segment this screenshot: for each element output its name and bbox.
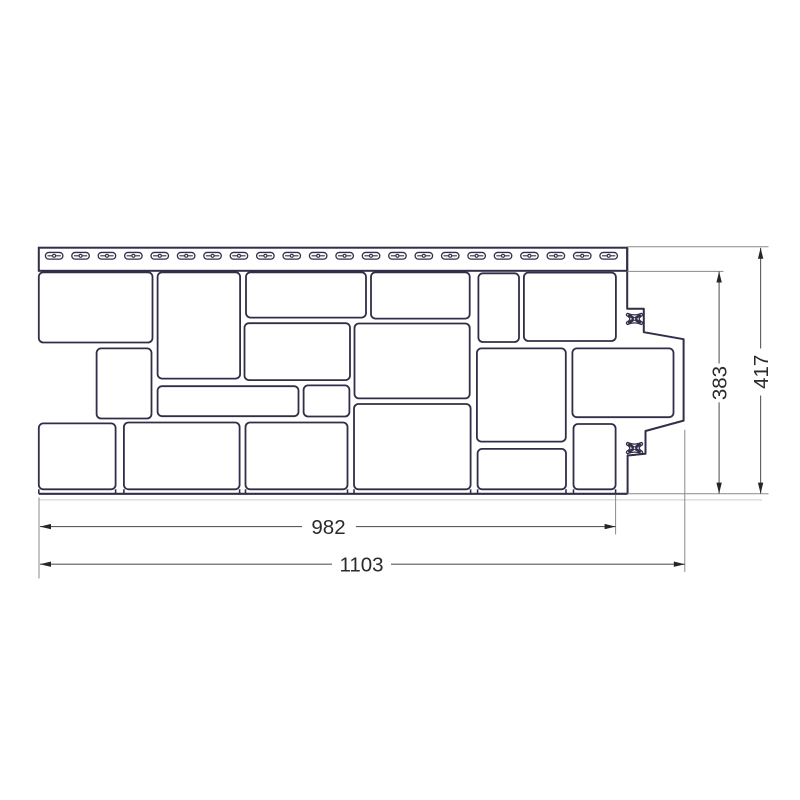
svg-text:982: 982 [311, 516, 345, 539]
svg-text:417: 417 [750, 355, 773, 389]
svg-text:383: 383 [708, 366, 731, 400]
svg-text:1103: 1103 [339, 553, 383, 576]
